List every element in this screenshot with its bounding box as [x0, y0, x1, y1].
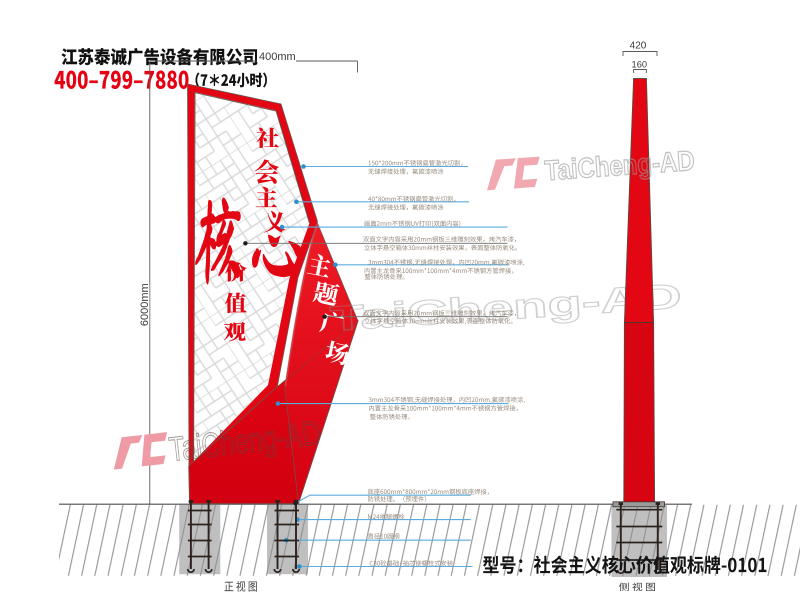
svg-text:400mm: 400mm — [259, 51, 296, 63]
svg-text:160: 160 — [632, 60, 648, 70]
svg-text:420: 420 — [630, 41, 647, 52]
svg-text:6000mm: 6000mm — [139, 283, 151, 326]
svg-text:TaiCheng-AD: TaiCheng-AD — [544, 145, 696, 186]
